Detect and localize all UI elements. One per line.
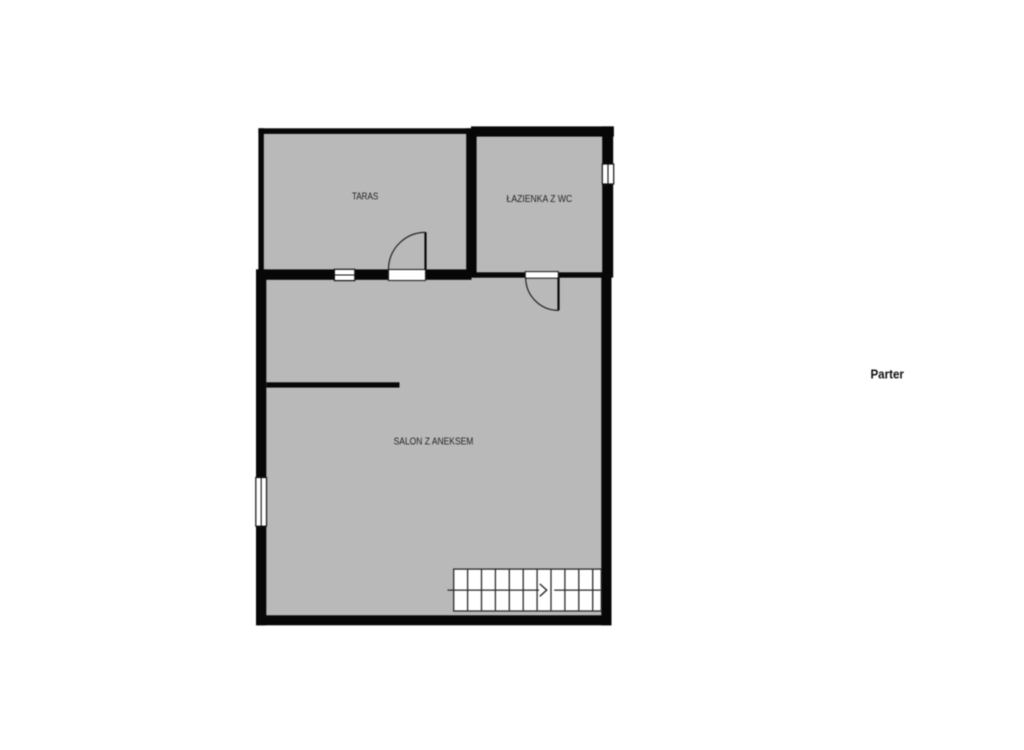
svg-text:Parter: Parter (870, 368, 904, 382)
svg-text:TARAS: TARAS (352, 191, 379, 202)
svg-text:SALON Z ANEKSEM: SALON Z ANEKSEM (394, 436, 474, 447)
svg-text:ŁAZIENKA Z WC: ŁAZIENKA Z WC (507, 194, 573, 205)
